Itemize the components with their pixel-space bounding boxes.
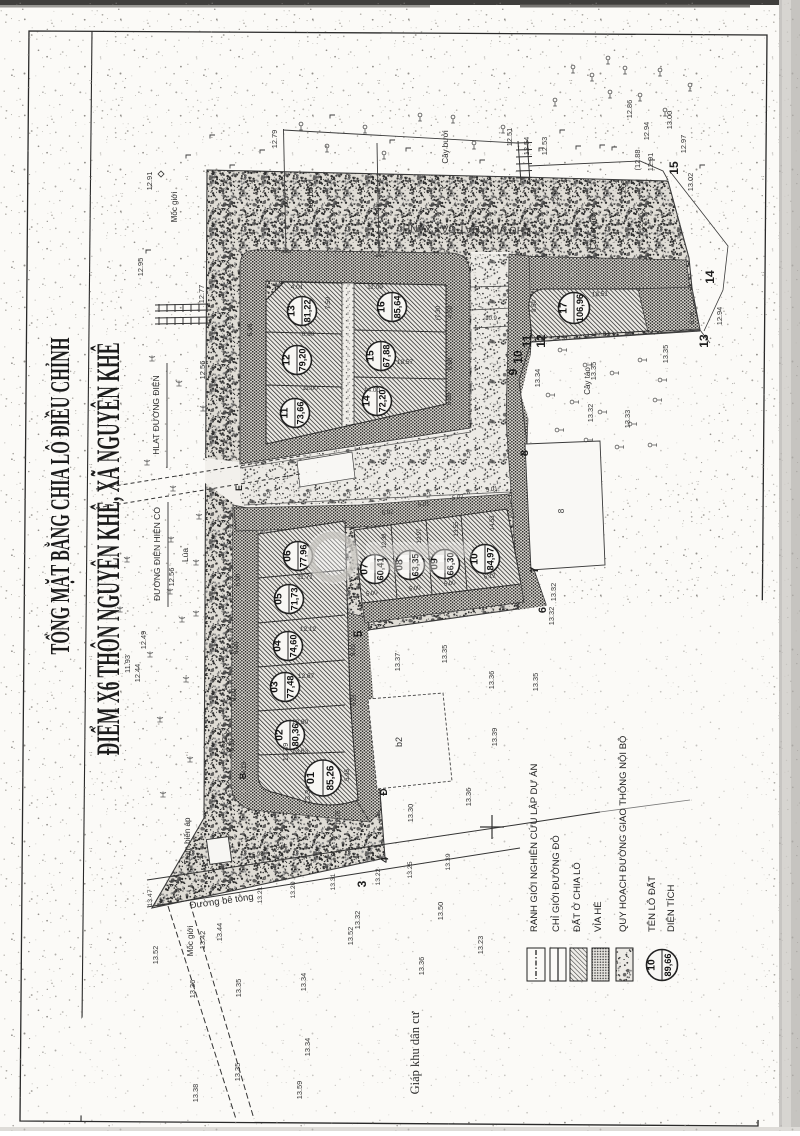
svg-text:14: 14 xyxy=(703,270,717,284)
svg-text:6.01: 6.01 xyxy=(352,694,358,706)
svg-text:85,64: 85,64 xyxy=(393,295,403,319)
svg-text:Đ: Đ xyxy=(379,788,390,795)
svg-text:74,60: 74,60 xyxy=(289,635,299,658)
svg-text:5.99: 5.99 xyxy=(351,644,357,656)
svg-text:11: 11 xyxy=(280,407,291,418)
svg-text:KHU VỰC ĐẤT CÂY XANH: KHU VỰC ĐẤT CÂY XANH xyxy=(402,222,531,237)
svg-text:13.32: 13.32 xyxy=(549,583,558,602)
svg-text:12: 12 xyxy=(534,334,548,348)
svg-text:13.36: 13.36 xyxy=(188,980,197,999)
svg-text:HLAT ĐƯỜNG ĐIỆN: HLAT ĐƯỜNG ĐIỆN xyxy=(151,375,161,454)
svg-text:05: 05 xyxy=(274,593,285,605)
svg-text:12.56: 12.56 xyxy=(198,361,207,380)
svg-text:DIỆN TÍCH: DIỆN TÍCH xyxy=(666,885,677,932)
svg-text:13.59: 13.59 xyxy=(295,1081,304,1100)
svg-text:Lúa: Lúa xyxy=(180,548,190,562)
svg-text:13.21: 13.21 xyxy=(257,886,264,903)
svg-text:E: E xyxy=(234,485,244,491)
svg-text:11: 11 xyxy=(520,334,534,347)
svg-text:11.09: 11.09 xyxy=(367,284,383,291)
svg-text:13.32: 13.32 xyxy=(547,607,556,626)
svg-text:13.63: 13.63 xyxy=(292,748,309,755)
svg-text:6.10: 6.10 xyxy=(229,738,236,751)
svg-text:13.36: 13.36 xyxy=(417,957,426,976)
svg-text:85,26: 85,26 xyxy=(325,765,336,790)
svg-text:6.00: 6.00 xyxy=(233,641,240,654)
svg-text:4.13: 4.13 xyxy=(241,761,248,774)
svg-text:Cây bưởi: Cây bưởi xyxy=(306,179,315,213)
svg-text:04: 04 xyxy=(273,640,284,652)
svg-text:13.22: 13.22 xyxy=(375,868,382,885)
svg-text:17: 17 xyxy=(558,302,569,314)
svg-text:13.42: 13.42 xyxy=(198,931,207,950)
svg-text:70.06: 70.06 xyxy=(374,203,381,220)
svg-text:ĐẤT Ở CHIA LÔ: ĐẤT Ở CHIA LÔ xyxy=(571,862,583,932)
svg-text:12.38: 12.38 xyxy=(382,533,388,549)
svg-text:12.94: 12.94 xyxy=(642,122,651,141)
svg-text:12.71: 12.71 xyxy=(281,188,290,207)
svg-text:18.57: 18.57 xyxy=(397,359,414,366)
svg-text:13.25: 13.25 xyxy=(407,861,414,878)
svg-text:13.37: 13.37 xyxy=(393,653,402,672)
svg-text:CHỈ GIỚI ĐƯỜNG ĐỎ: CHỈ GIỚI ĐƯỜNG ĐỎ xyxy=(550,835,562,932)
svg-text:12.95: 12.95 xyxy=(136,258,145,277)
svg-text:12.86: 12.86 xyxy=(625,100,634,119)
svg-text:13.38: 13.38 xyxy=(191,1084,200,1103)
svg-text:12.08: 12.08 xyxy=(619,180,628,199)
svg-text:7: 7 xyxy=(529,567,541,573)
svg-text:13.35: 13.35 xyxy=(531,673,540,692)
svg-text:9: 9 xyxy=(506,368,520,375)
svg-text:13.32: 13.32 xyxy=(586,404,595,423)
svg-text:71,73: 71,73 xyxy=(290,588,300,611)
svg-text:13.20: 13.20 xyxy=(290,881,297,898)
svg-text:80,36: 80,36 xyxy=(291,724,301,747)
svg-text:8: 8 xyxy=(519,450,531,456)
svg-text:12.77: 12.77 xyxy=(197,285,206,304)
svg-text:13.31: 13.31 xyxy=(330,873,337,890)
svg-text:Trạm biến áp: Trạm biến áp xyxy=(183,817,192,864)
svg-text:17.81: 17.81 xyxy=(594,331,611,339)
svg-text:13.34: 13.34 xyxy=(299,973,308,992)
svg-text:13.23: 13.23 xyxy=(476,936,485,955)
svg-text:12.53: 12.53 xyxy=(540,137,549,156)
svg-text:13.35: 13.35 xyxy=(440,645,449,664)
svg-text:79,20: 79,20 xyxy=(298,349,308,372)
svg-text:10: 10 xyxy=(646,959,657,971)
svg-text:06: 06 xyxy=(283,550,294,562)
svg-text:15: 15 xyxy=(667,161,681,175)
svg-text:TÊN LÔ ĐẤT: TÊN LÔ ĐẤT xyxy=(647,876,658,932)
svg-text:13.47: 13.47 xyxy=(147,889,154,906)
svg-text:11.93: 11.93 xyxy=(123,655,132,673)
svg-text:13.35: 13.35 xyxy=(661,345,670,364)
svg-text:11.00: 11.00 xyxy=(302,385,318,392)
svg-text:16: 16 xyxy=(377,301,388,313)
svg-text:7.59: 7.59 xyxy=(325,296,332,309)
svg-text:77,48: 77,48 xyxy=(286,676,296,699)
svg-text:6.08: 6.08 xyxy=(690,312,696,324)
svg-text:13.39: 13.39 xyxy=(490,728,499,747)
svg-text:4.01: 4.01 xyxy=(291,284,304,291)
svg-text:106,96: 106,96 xyxy=(575,294,585,322)
svg-text:3: 3 xyxy=(355,880,369,887)
svg-text:12.67: 12.67 xyxy=(298,673,315,680)
svg-text:6.00: 6.00 xyxy=(302,331,315,338)
svg-text:12.12: 12.12 xyxy=(300,626,317,633)
svg-text:Mốc giới: Mốc giới xyxy=(170,191,179,222)
svg-text:13.02: 13.02 xyxy=(686,173,695,192)
svg-text:5.98: 5.98 xyxy=(247,323,254,336)
svg-text:18.51: 18.51 xyxy=(592,291,609,299)
svg-text:QUY HOẠCH ĐƯỜNG GIAO THÔNG NỘI: QUY HOẠCH ĐƯỜNG GIAO THÔNG NỘI BỘ xyxy=(618,736,629,932)
svg-text:03: 03 xyxy=(270,681,281,693)
svg-text:VỈA HÈ: VỈA HÈ xyxy=(592,901,604,932)
svg-text:13.35: 13.35 xyxy=(220,733,229,752)
svg-text:12.94: 12.94 xyxy=(715,307,724,326)
svg-text:12.91: 12.91 xyxy=(145,172,154,191)
svg-text:13.35: 13.35 xyxy=(589,362,598,381)
svg-text:13: 13 xyxy=(697,334,711,348)
svg-text:12.79: 12.79 xyxy=(270,130,279,149)
svg-text:13.34: 13.34 xyxy=(303,1038,312,1057)
svg-text:ĐƯỜNG ĐIỆN HIỆN CÓ: ĐƯỜNG ĐIỆN HIỆN CÓ xyxy=(152,507,162,601)
svg-text:Mốc giới: Mốc giới xyxy=(186,925,195,956)
svg-text:13.36: 13.36 xyxy=(487,671,496,690)
svg-text:10: 10 xyxy=(511,350,525,364)
svg-text:02: 02 xyxy=(275,729,286,741)
svg-text:(12.88: (12.88 xyxy=(633,150,642,171)
svg-text:13.39: 13.39 xyxy=(281,743,290,762)
svg-text:84,97: 84,97 xyxy=(486,548,496,571)
svg-text:11.71: 11.71 xyxy=(297,574,313,581)
svg-text:4: 4 xyxy=(380,857,391,863)
svg-text:Cây bưởi: Cây bưởi xyxy=(441,130,450,164)
svg-text:5.95: 5.95 xyxy=(345,769,351,781)
svg-text:12.49: 12.49 xyxy=(139,631,148,650)
svg-text:12.97: 12.97 xyxy=(417,528,423,544)
svg-text:6.09: 6.09 xyxy=(446,392,453,405)
svg-text:13: 13 xyxy=(287,305,298,317)
svg-text:12.51: 12.51 xyxy=(505,128,514,147)
svg-text:RANH GIỚI NGHIÊN CỨU LẬP DỰ ÁN: RANH GIỚI NGHIÊN CỨU LẬP DỰ ÁN xyxy=(529,764,540,932)
svg-text:73,66: 73,66 xyxy=(296,402,306,425)
svg-text:12.95: 12.95 xyxy=(551,187,560,206)
svg-text:12.44: 12.44 xyxy=(133,664,142,683)
svg-text:12.91: 12.91 xyxy=(646,153,655,172)
svg-text:67,88: 67,88 xyxy=(382,345,392,368)
svg-text:13.00: 13.00 xyxy=(665,111,674,130)
svg-text:01: 01 xyxy=(305,772,317,784)
svg-text:14: 14 xyxy=(362,395,373,407)
svg-text:13.34: 13.34 xyxy=(303,786,312,805)
svg-text:8: 8 xyxy=(557,508,566,513)
svg-text:12.76: 12.76 xyxy=(336,810,342,826)
svg-text:13.36: 13.36 xyxy=(464,788,473,807)
svg-text:14.53: 14.53 xyxy=(490,515,496,531)
svg-text:15: 15 xyxy=(366,350,377,362)
svg-text:13.44: 13.44 xyxy=(215,923,224,942)
svg-text:6.00: 6.00 xyxy=(235,573,242,586)
svg-text:13.52: 13.52 xyxy=(151,946,160,965)
svg-text:b2: b2 xyxy=(394,737,404,747)
svg-text:13.34: 13.34 xyxy=(533,369,542,388)
svg-text:12.56: 12.56 xyxy=(167,568,176,587)
svg-text:4.50: 4.50 xyxy=(447,305,454,318)
svg-text:13.80: 13.80 xyxy=(292,719,309,726)
svg-text:13.50: 13.50 xyxy=(436,902,445,921)
svg-text:6.00: 6.00 xyxy=(231,688,238,701)
svg-text:13.39: 13.39 xyxy=(445,853,452,870)
svg-text:6.60: 6.60 xyxy=(447,357,454,370)
svg-text:5: 5 xyxy=(351,630,365,637)
svg-text:12.97: 12.97 xyxy=(679,135,688,154)
svg-text:81,22: 81,22 xyxy=(303,300,313,323)
svg-text:14.00: 14.00 xyxy=(364,387,381,394)
svg-text:Cây chuối: Cây chuối xyxy=(589,214,598,250)
svg-text:12.46: 12.46 xyxy=(636,213,645,232)
svg-text:13.32: 13.32 xyxy=(353,911,362,930)
svg-text:12.54: 12.54 xyxy=(522,137,531,156)
svg-text:89,66: 89,66 xyxy=(663,954,673,977)
svg-text:8.50: 8.50 xyxy=(532,300,538,312)
svg-text:13.35: 13.35 xyxy=(233,1063,242,1082)
svg-text:12: 12 xyxy=(282,354,293,366)
svg-text:13.30: 13.30 xyxy=(406,804,415,823)
svg-text:Giáp khu dân cư: Giáp khu dân cư xyxy=(408,1010,422,1094)
svg-text:(7.30: (7.30 xyxy=(435,305,442,320)
svg-text:13.55: 13.55 xyxy=(454,521,460,537)
svg-text:13.35: 13.35 xyxy=(234,979,243,998)
